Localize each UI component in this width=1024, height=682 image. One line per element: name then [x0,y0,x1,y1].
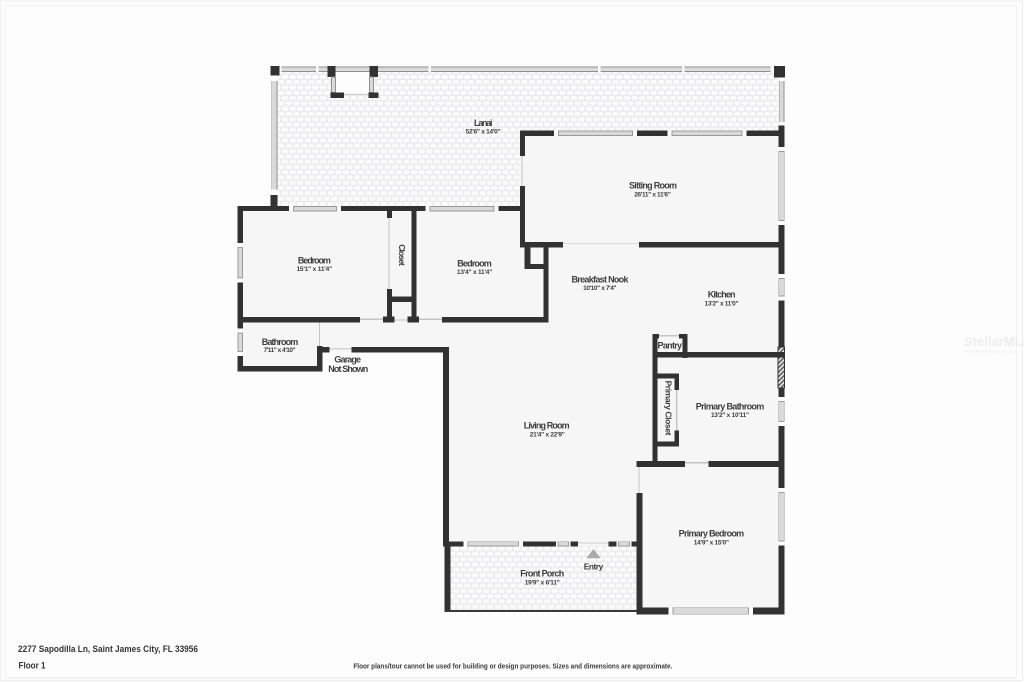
svg-text:2277 Sapodilla Ln, Saint James: 2277 Sapodilla Ln, Saint James City, FL … [18,644,198,655]
svg-text:13'2" x 11'0": 13'2" x 11'0" [705,300,739,307]
svg-text:19'9" x 6'11": 19'9" x 6'11" [525,580,560,587]
svg-text:Living Room: Living Room [524,420,570,430]
svg-text:Floor plans/tour cannot be use: Floor plans/tour cannot be used for buil… [353,662,672,671]
svg-text:StellarMLS: StellarMLS [964,334,1024,349]
svg-text:Bathroom: Bathroom [262,337,299,347]
svg-text:Primary Bathroom: Primary Bathroom [696,402,765,412]
svg-text:Primary Bedroom: Primary Bedroom [679,529,745,539]
svg-text:Bedroom: Bedroom [457,259,492,269]
svg-text:Front Porch: Front Porch [520,569,564,579]
svg-text:Kitchen: Kitchen [708,290,736,300]
svg-text:Breakfast Nook: Breakfast Nook [572,274,630,284]
svg-text:Sitting Room: Sitting Room [629,180,677,190]
svg-text:13'2" x 10'11": 13'2" x 10'11" [711,412,749,419]
svg-text:Not Shown: Not Shown [328,364,368,374]
svg-text:Primary Closet: Primary Closet [663,381,673,436]
svg-text:52'6" x 14'0": 52'6" x 14'0" [466,129,501,136]
svg-text:10'10" x 7'4": 10'10" x 7'4" [583,285,616,292]
svg-text:Floor 1: Floor 1 [19,660,47,671]
svg-text:14'9" x 15'0": 14'9" x 15'0" [694,539,729,546]
svg-text:Lanai: Lanai [474,118,493,128]
svg-text:Pantry: Pantry [658,341,683,351]
svg-text:7'11" x 4'10": 7'11" x 4'10" [264,347,296,354]
svg-text:Closet: Closet [397,244,407,266]
svg-text:Entry: Entry [584,562,604,572]
svg-text:26'11" x 11'6": 26'11" x 11'6" [634,191,671,198]
svg-text:21'4" x 22'9": 21'4" x 22'9" [530,432,565,439]
svg-text:13'4" x 11'4": 13'4" x 11'4" [457,269,492,276]
svg-text:COPYRIGHT STELLAR MLS: COPYRIGHT STELLAR MLS [964,349,1017,354]
svg-text:Bedroom: Bedroom [298,256,331,266]
svg-text:15'1" x 11'4": 15'1" x 11'4" [296,266,332,273]
